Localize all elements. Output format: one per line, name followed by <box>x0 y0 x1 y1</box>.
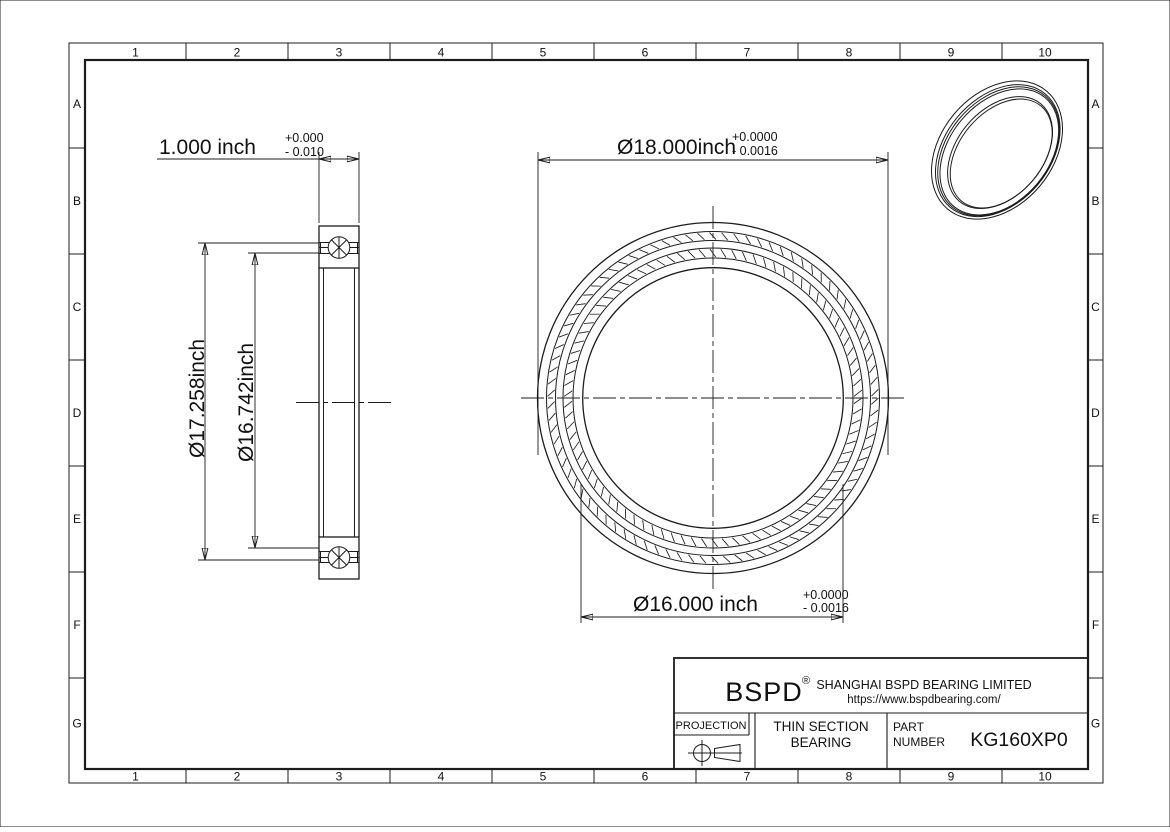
part-number-label-line1: PART <box>893 720 925 734</box>
ball-tick <box>853 409 862 414</box>
ball-tick <box>722 539 728 546</box>
iso-outer-edge <box>905 55 1090 245</box>
ball-tick <box>567 422 574 429</box>
grid-row-label-left-D: D <box>73 406 82 420</box>
ball-tick <box>691 537 696 546</box>
width-tolerance-plus: +0.000 <box>285 131 324 145</box>
product-name-line1: THIN SECTION <box>773 719 868 734</box>
ball-tick <box>860 331 864 340</box>
ball-tick <box>779 542 788 545</box>
ball-tick <box>563 458 567 467</box>
ball-tick <box>551 425 557 433</box>
ball-tick <box>843 451 853 453</box>
width-dimension: 1.000 inch +0.000 - 0.010 <box>157 131 359 223</box>
ball-tick <box>722 233 728 240</box>
ball-tick <box>558 447 562 455</box>
grid-col-label-bottom-10: 10 <box>1038 770 1052 784</box>
grid-row-label-left-E: E <box>73 512 81 526</box>
projection-label: PROJECTION <box>676 720 747 732</box>
outer-diameter-tolerance-minus: - 0.0016 <box>732 144 778 158</box>
ball-tick <box>571 350 580 353</box>
front-view <box>521 206 906 592</box>
ball-tick <box>582 461 586 470</box>
ball-tick <box>566 370 575 374</box>
ball-tick <box>674 237 682 242</box>
ball-tick <box>619 282 629 285</box>
ball-tick <box>866 434 874 439</box>
ball-tick <box>763 258 766 268</box>
ball-tick <box>814 496 824 497</box>
ball-tick <box>871 389 878 396</box>
ball-tick <box>600 277 610 278</box>
ball-tick <box>666 549 670 558</box>
ball-tick <box>809 524 818 525</box>
grid-col-label-top-9: 9 <box>948 46 955 60</box>
ball-tick <box>570 313 579 315</box>
ball-tick <box>634 515 635 525</box>
grid-row-label-right-B: B <box>1091 194 1099 208</box>
ball-tick <box>596 305 606 306</box>
grid-row-label-right-F: F <box>1092 618 1099 632</box>
grid-col-label-top-4: 4 <box>438 46 445 60</box>
ball-tick <box>549 413 555 420</box>
ball-tick <box>634 535 636 544</box>
ball-tick <box>848 479 857 481</box>
outer-diameter-dimension-text: Ø18.000inch <box>617 136 736 159</box>
ball-tick <box>583 295 593 296</box>
third-angle-projection-icon <box>688 740 742 766</box>
ball-tick <box>840 328 844 337</box>
ball-tick <box>802 258 804 267</box>
ball-tick <box>601 487 603 497</box>
ball-tick <box>871 398 878 404</box>
ball-tick <box>568 469 571 478</box>
ball-tick <box>772 526 781 531</box>
ball-tick <box>844 299 846 308</box>
ball-tick <box>570 432 576 440</box>
ball-tick <box>548 402 555 409</box>
outer-diameter-tolerance-plus: +0.0000 <box>732 130 778 144</box>
ball-tick <box>617 502 618 512</box>
ball-tick <box>564 323 573 326</box>
ball-tick <box>732 538 739 545</box>
ball-tick <box>757 550 765 555</box>
ball-tick <box>647 265 656 270</box>
ball-tick <box>677 552 682 560</box>
grid-col-label-bottom-9: 9 <box>948 770 955 784</box>
ball-tick <box>838 461 848 463</box>
grid-col-label-top-1: 1 <box>132 46 139 60</box>
ball-tick <box>652 525 654 535</box>
grid-row-label-left-G: G <box>72 717 81 731</box>
ball-tick <box>746 553 754 558</box>
ball-tick <box>844 337 849 345</box>
ball-tick <box>559 334 568 337</box>
ball-tick <box>854 390 862 396</box>
ball-tick <box>834 499 844 500</box>
title-block: BSPD ® SHANGHAI BSPD BEARING LIMITED htt… <box>674 658 1088 769</box>
company-website: https://www.bspdbearing.com/ <box>847 694 1001 706</box>
ball-tick <box>806 504 816 506</box>
grid-row-label-left-F: F <box>73 618 80 632</box>
ball-tick <box>594 479 597 488</box>
ball-tick <box>589 498 590 507</box>
ball-tick <box>753 254 756 263</box>
ball-tick <box>619 262 628 264</box>
ball-tick <box>697 233 704 239</box>
ball-tick <box>864 342 869 350</box>
ball-tick <box>650 245 659 249</box>
bore-diameter-tolerance-plus: +0.0000 <box>803 588 849 602</box>
ball-tick <box>723 556 730 562</box>
ball-tick <box>584 323 594 324</box>
grid-col-label-top-8: 8 <box>846 46 853 60</box>
ball-tick <box>746 236 751 244</box>
ball-tick <box>639 250 648 254</box>
ball-tick <box>685 235 692 241</box>
inner-race-dimension: Ø16.742inch <box>235 253 319 548</box>
ball-tick <box>847 348 853 356</box>
bore-diameter-dimension: Ø16.000 inch +0.0000 - 0.0016 <box>581 484 849 623</box>
product-name-line2: BEARING <box>791 735 852 750</box>
ball-tick <box>769 546 778 550</box>
ball-tick <box>564 401 572 407</box>
grid-col-label-bottom-6: 6 <box>642 770 649 784</box>
ball-tick <box>609 269 618 271</box>
ball-tick <box>565 381 574 386</box>
width-tolerance-minus: - 0.010 <box>285 145 324 159</box>
grid-row-label-right-C: C <box>1091 300 1100 314</box>
ball-tick <box>677 253 684 260</box>
ball-tick <box>783 267 784 277</box>
ball-tick <box>643 520 644 530</box>
ball-tick <box>871 377 877 384</box>
grid-col-label-bottom-1: 1 <box>132 770 139 784</box>
ball-tick <box>657 260 665 265</box>
ball-tick <box>790 516 799 519</box>
ball-tick <box>870 410 878 416</box>
ball-tick <box>817 293 819 303</box>
ball-tick <box>850 309 853 318</box>
ball-tick <box>800 531 809 533</box>
ball-tick <box>655 545 659 554</box>
ball-tick <box>781 521 790 525</box>
grid-col-label-top-5: 5 <box>540 46 547 60</box>
ball-tick <box>833 471 843 472</box>
ball-tick <box>734 234 739 242</box>
ball-tick <box>854 468 863 471</box>
company-logo: BSPD <box>725 677 803 707</box>
grid-col-label-top-2: 2 <box>234 46 241 60</box>
ball-tick <box>568 360 577 364</box>
ball-tick <box>564 391 572 397</box>
ball-tick <box>849 431 858 435</box>
ball-tick <box>629 256 638 259</box>
ball-tick <box>588 470 592 479</box>
ball-tick <box>554 436 559 444</box>
ball-tick <box>769 242 773 251</box>
ball-tick <box>576 304 585 305</box>
ball-tick <box>870 365 876 373</box>
grid-col-label-bottom-2: 2 <box>234 770 241 784</box>
ball-tick <box>758 239 762 248</box>
ball-tick <box>550 367 558 372</box>
ball-tick <box>548 390 555 396</box>
ball-tick <box>863 446 872 450</box>
grid-row-label-left-C: C <box>73 300 82 314</box>
ball-tick <box>573 442 579 450</box>
width-dimension-text: 1.000 inch <box>159 136 256 159</box>
grid-col-label-bottom-8: 8 <box>846 770 853 784</box>
ball-tick <box>835 318 839 327</box>
grid-col-label-bottom-3: 3 <box>336 770 343 784</box>
bore-diameter-tolerance-minus: - 0.0016 <box>803 601 849 615</box>
grid-col-label-top-10: 10 <box>1038 46 1052 60</box>
grid-row-label-left-B: B <box>73 194 81 208</box>
ball-tick <box>829 309 832 318</box>
ball-tick <box>688 555 693 563</box>
ball-tick <box>823 301 825 311</box>
ball-tick <box>869 422 877 427</box>
grid-col-label-top-7: 7 <box>744 46 751 60</box>
ball-tick <box>762 530 770 535</box>
grid-col-label-bottom-7: 7 <box>744 770 751 784</box>
ball-tick <box>735 555 743 561</box>
ball-tick <box>850 358 856 366</box>
ball-tick <box>867 353 872 361</box>
ball-tick <box>859 457 868 460</box>
ball-tick <box>791 252 793 261</box>
ball-tick <box>818 517 828 518</box>
ball-tick <box>700 556 706 563</box>
ball-tick <box>837 290 838 299</box>
grid-row-label-left-A: A <box>73 97 81 111</box>
ball-tick <box>565 412 572 419</box>
grid-row-label-right-E: E <box>1091 512 1099 526</box>
ball-tick <box>780 247 783 256</box>
ball-tick <box>701 539 706 547</box>
ball-tick <box>809 285 810 295</box>
engineering-drawing: 1122334455667788991010AABBCCDDEEFFGG <box>0 0 1170 827</box>
ball-tick <box>662 241 670 246</box>
bore-diameter-dimension-text: Ø16.000 inch <box>633 593 758 616</box>
ball-tick <box>853 379 860 386</box>
inner-race-dimension-text: Ø16.742inch <box>235 343 258 462</box>
ball-tick <box>667 256 675 262</box>
ball-tick <box>681 535 685 544</box>
grid-col-label-bottom-5: 5 <box>540 770 547 784</box>
ball-tick <box>829 281 830 291</box>
ball-tick <box>661 529 664 539</box>
ball-tick <box>574 341 584 343</box>
ball-tick <box>624 529 626 538</box>
ball-tick <box>854 398 862 404</box>
isometric-view <box>905 55 1090 245</box>
grid-col-label-top-6: 6 <box>642 46 649 60</box>
ball-tick <box>578 452 583 461</box>
ball-tick <box>644 541 647 550</box>
ball-tick <box>856 320 859 329</box>
grid-row-label-right-D: D <box>1091 406 1100 420</box>
ball-tick <box>579 332 589 334</box>
grid-col-label-top-3: 3 <box>336 46 343 60</box>
ball-tick <box>852 369 859 376</box>
ball-tick <box>555 345 564 349</box>
company-name: SHANGHAI BSPD BEARING LIMITED <box>816 678 1031 692</box>
ball-tick <box>852 420 861 424</box>
ball-tick <box>743 536 750 542</box>
outer-race-dimension-text: Ø17.258inch <box>186 339 209 458</box>
ball-tick <box>637 270 646 274</box>
ball-tick <box>671 533 674 542</box>
ball-tick <box>846 441 855 444</box>
drawing-sheet: 1122334455667788991010AABBCCDDEEFFGG <box>0 0 1170 827</box>
registered-mark: ® <box>802 675 810 687</box>
ball-tick <box>732 250 737 259</box>
ball-tick <box>699 250 705 258</box>
ball-tick <box>798 510 808 513</box>
side-section-view <box>296 226 392 579</box>
ball-tick <box>821 489 831 490</box>
grid-col-label-bottom-4: 4 <box>438 770 445 784</box>
ball-tick <box>603 297 613 298</box>
grid-row-label-right-A: A <box>1091 97 1099 111</box>
ball-tick <box>753 533 761 539</box>
part-number-value: KG160XP0 <box>970 729 1068 751</box>
grid-row-label-right-G: G <box>1091 717 1100 731</box>
ball-tick <box>611 289 621 291</box>
ball-tick <box>552 356 560 361</box>
ball-tick <box>790 537 799 540</box>
ball-tick <box>688 251 695 258</box>
ball-tick <box>812 265 813 275</box>
ball-tick <box>628 276 637 279</box>
part-number-label-line2: NUMBER <box>893 735 945 749</box>
ball-tick <box>615 522 616 532</box>
ball-tick <box>609 495 611 505</box>
ball-tick <box>574 479 577 488</box>
ball-tick <box>742 252 746 261</box>
ball-tick <box>548 378 556 384</box>
ball-tick <box>721 249 726 257</box>
ball-tick <box>774 262 776 272</box>
